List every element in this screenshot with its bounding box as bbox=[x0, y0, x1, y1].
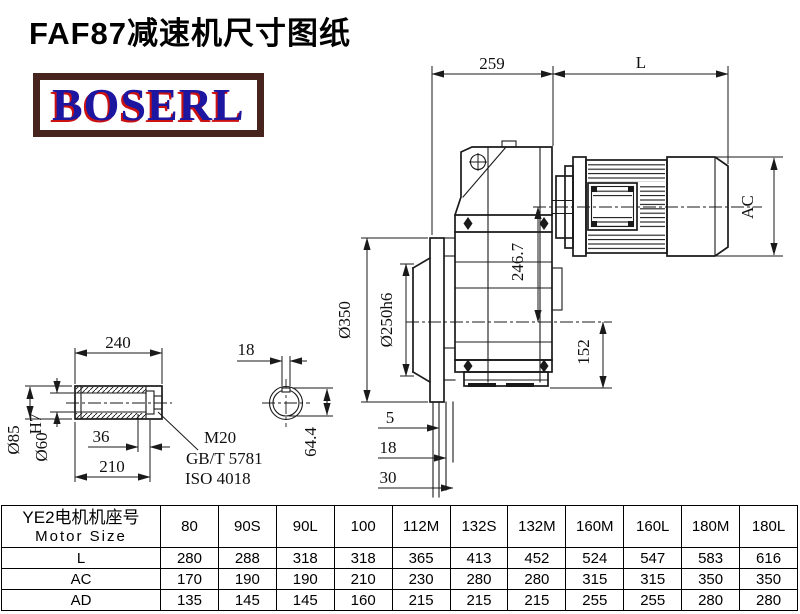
dim-label-key-width: 18 bbox=[238, 340, 255, 359]
dim-label-standard-gb: GB/T 5781 bbox=[186, 449, 263, 468]
dim-label-36: 36 bbox=[93, 427, 110, 446]
cell-L-180M: 583 bbox=[682, 548, 740, 569]
dim-label-210: 210 bbox=[99, 457, 125, 476]
cell-AD-112M: 215 bbox=[392, 590, 450, 611]
dim-label-259: 259 bbox=[479, 54, 505, 73]
dim-label-thread: M20 bbox=[204, 428, 236, 447]
cell-AD-180L: 280 bbox=[740, 590, 798, 611]
cell-AC-90L: 190 bbox=[276, 569, 334, 590]
cell-AC-180L: 350 bbox=[740, 569, 798, 590]
hollow-shaft-detail: 240 Ø85 Ø60 H7 36 210 M20 GB/T 5781 ISO … bbox=[4, 333, 263, 488]
cell-L-132S: 413 bbox=[450, 548, 508, 569]
row-label-L: L bbox=[2, 548, 161, 569]
header-motor-size-zh: YE2电机机座号 bbox=[2, 508, 160, 528]
cell-AC-100: 210 bbox=[334, 569, 392, 590]
dim-label-246-7: 246.7 bbox=[508, 242, 527, 281]
cell-L-180L: 616 bbox=[740, 548, 798, 569]
cell-L-100: 318 bbox=[334, 548, 392, 569]
motor bbox=[552, 157, 728, 256]
dim-label-motor-length: L bbox=[636, 53, 646, 72]
foot-pad bbox=[468, 383, 496, 387]
cell-AD-100: 160 bbox=[334, 590, 392, 611]
end-washer bbox=[146, 391, 154, 414]
cell-L-90L: 318 bbox=[276, 548, 334, 569]
column-header-160M: 160M bbox=[566, 506, 624, 548]
dim-label-bore-d: Ø60 bbox=[32, 432, 51, 461]
cell-AD-90L: 145 bbox=[276, 590, 334, 611]
column-header-112M: 112M bbox=[392, 506, 450, 548]
output-cover-boss bbox=[552, 268, 562, 310]
cell-AD-160M: 255 bbox=[566, 590, 624, 611]
table-header-row: YE2电机机座号 Motor Size 8090S90L100112M132S1… bbox=[2, 506, 798, 548]
column-header-90S: 90S bbox=[218, 506, 276, 548]
flange-bolt-marks bbox=[464, 217, 549, 373]
cell-L-132M: 452 bbox=[508, 548, 566, 569]
table-row-AC: AC170190190210230280280315315350350 bbox=[2, 569, 798, 590]
header-motor-size: YE2电机机座号 Motor Size bbox=[2, 506, 161, 548]
dim-label-240: 240 bbox=[105, 333, 131, 352]
dim-label-pilot-5: 5 bbox=[386, 408, 395, 427]
cell-AD-160L: 255 bbox=[624, 590, 682, 611]
dim-label-pilot-30: 30 bbox=[380, 468, 397, 487]
cell-AC-90S: 190 bbox=[218, 569, 276, 590]
motor-size-table: YE2电机机座号 Motor Size 8090S90L100112M132S1… bbox=[1, 505, 798, 611]
dimensions-side-view: 259 L AC 246.7 152 Ø350 Ø250h6 5 18 bbox=[335, 53, 783, 488]
flange-pilot-lines bbox=[433, 402, 453, 497]
dimension-drawing: 259 L AC 246.7 152 Ø350 Ø250h6 5 18 bbox=[0, 0, 800, 505]
column-header-90L: 90L bbox=[276, 506, 334, 548]
drawing-sheet: FAF87减速机尺寸图纸 BOSERL bbox=[0, 0, 800, 614]
cell-AD-80: 135 bbox=[161, 590, 219, 611]
cell-L-90S: 288 bbox=[218, 548, 276, 569]
foot-pad bbox=[506, 383, 534, 387]
cell-L-160M: 524 bbox=[566, 548, 624, 569]
cell-AC-112M: 230 bbox=[392, 569, 450, 590]
dim-label-key-height: 64.4 bbox=[301, 427, 320, 457]
oil-plug bbox=[502, 141, 516, 147]
column-header-80: 80 bbox=[161, 506, 219, 548]
cell-AC-132M: 280 bbox=[508, 569, 566, 590]
motor-fins-top bbox=[588, 163, 665, 182]
dim-label-flange-18: 18 bbox=[380, 438, 397, 457]
column-header-100: 100 bbox=[334, 506, 392, 548]
cell-L-80: 280 bbox=[161, 548, 219, 569]
retaining-bolt bbox=[154, 396, 162, 409]
motor-size-table-body: L280288318318365413452524547583616AC1701… bbox=[2, 548, 798, 611]
cell-AC-132S: 280 bbox=[450, 569, 508, 590]
cell-AD-180M: 280 bbox=[682, 590, 740, 611]
cell-AC-160M: 315 bbox=[566, 569, 624, 590]
row-label-AD: AD bbox=[2, 590, 161, 611]
dim-label-ac: AC bbox=[738, 195, 757, 219]
fan-cover bbox=[667, 157, 728, 256]
thread-leader-line bbox=[158, 412, 198, 450]
terminal-box bbox=[588, 183, 637, 230]
dim-label-bore-tol: H7 bbox=[26, 413, 45, 434]
keyway bbox=[282, 388, 290, 392]
cell-AD-90S: 145 bbox=[218, 590, 276, 611]
dim-label-152: 152 bbox=[574, 339, 593, 365]
column-header-180M: 180M bbox=[682, 506, 740, 548]
column-header-180L: 180L bbox=[740, 506, 798, 548]
row-label-AC: AC bbox=[2, 569, 161, 590]
column-header-132M: 132M bbox=[508, 506, 566, 548]
cell-AD-132M: 215 bbox=[508, 590, 566, 611]
cell-AC-80: 170 bbox=[161, 569, 219, 590]
cell-L-112M: 365 bbox=[392, 548, 450, 569]
motor-fins-bottom bbox=[588, 232, 665, 252]
dim-label-flange-od: Ø350 bbox=[335, 301, 354, 339]
cell-AD-132S: 215 bbox=[450, 590, 508, 611]
cell-L-160L: 547 bbox=[624, 548, 682, 569]
dim-label-spigot-od: Ø250h6 bbox=[377, 293, 396, 348]
bore-section-detail: 18 64.4 bbox=[237, 340, 333, 457]
header-motor-size-en: Motor Size bbox=[2, 528, 160, 545]
eyebolt-mark bbox=[469, 153, 487, 171]
table-row-AD: AD135145145160215215215255255280280 bbox=[2, 590, 798, 611]
cell-AC-180M: 350 bbox=[682, 569, 740, 590]
motor-flange bbox=[573, 157, 586, 256]
column-header-160L: 160L bbox=[624, 506, 682, 548]
cell-AC-160L: 315 bbox=[624, 569, 682, 590]
dim-label-shaft-od: Ø85 bbox=[4, 425, 23, 454]
column-header-132S: 132S bbox=[450, 506, 508, 548]
table-row-L: L280288318318365413452524547583616 bbox=[2, 548, 798, 569]
dim-label-standard-iso: ISO 4018 bbox=[185, 469, 251, 488]
